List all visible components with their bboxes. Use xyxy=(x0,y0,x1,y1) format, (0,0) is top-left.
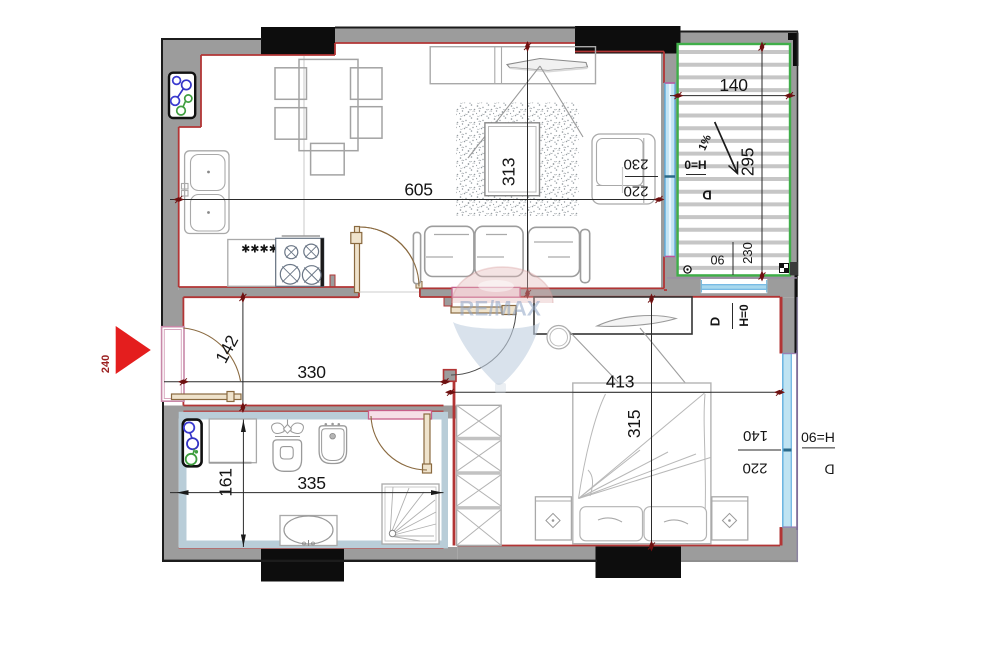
svg-text:605: 605 xyxy=(404,180,432,200)
svg-text:413: 413 xyxy=(606,372,634,392)
svg-text:330: 330 xyxy=(297,362,326,382)
svg-text:90: 90 xyxy=(711,253,725,267)
svg-text:D: D xyxy=(824,461,834,477)
svg-text:161: 161 xyxy=(216,468,236,496)
svg-text:335: 335 xyxy=(297,473,325,493)
svg-text:295: 295 xyxy=(738,148,758,176)
svg-text:230: 230 xyxy=(623,156,648,173)
svg-text:230: 230 xyxy=(740,242,755,264)
svg-text:315: 315 xyxy=(624,410,644,438)
svg-text:✱✱✱✱: ✱✱✱✱ xyxy=(241,244,278,256)
svg-text:D: D xyxy=(702,188,711,203)
svg-text:140: 140 xyxy=(743,427,768,444)
svg-text:240: 240 xyxy=(100,355,112,373)
svg-text:H=0: H=0 xyxy=(737,304,751,327)
svg-text:H=90: H=90 xyxy=(801,429,835,445)
svg-text:D: D xyxy=(707,317,722,326)
svg-text:H=0: H=0 xyxy=(684,157,707,171)
svg-text:RE/MAX: RE/MAX xyxy=(459,298,541,321)
svg-text:220: 220 xyxy=(623,183,648,200)
svg-text:220: 220 xyxy=(742,460,767,477)
svg-text:313: 313 xyxy=(499,158,519,186)
svg-text:140: 140 xyxy=(719,75,748,95)
